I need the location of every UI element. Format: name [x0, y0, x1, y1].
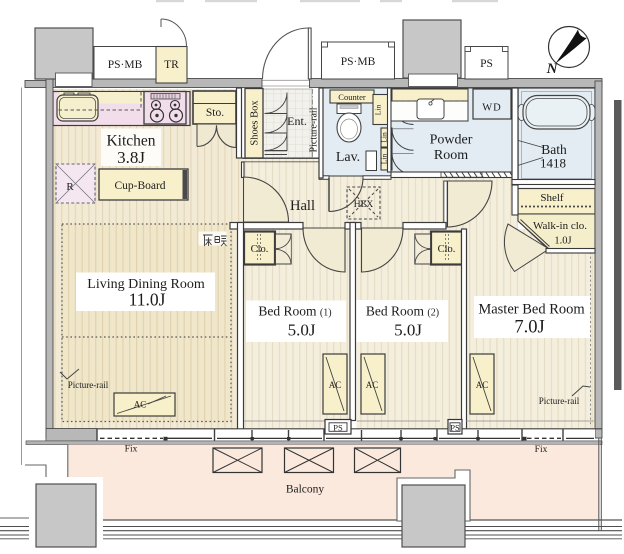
- svg-text:AC: AC: [476, 380, 489, 390]
- svg-text:Balcony: Balcony: [286, 484, 325, 496]
- svg-text:Fix: Fix: [125, 445, 138, 455]
- svg-text:PS: PS: [480, 58, 493, 70]
- svg-text:5.0J: 5.0J: [288, 321, 316, 340]
- svg-text:Master Bed Room: Master Bed Room: [478, 302, 585, 318]
- svg-text:1418: 1418: [540, 156, 566, 171]
- svg-text:Picture-rail: Picture-rail: [68, 380, 109, 390]
- svg-text:Lin: Lin: [374, 105, 383, 116]
- svg-text:N: N: [546, 61, 559, 77]
- svg-text:Powder: Powder: [430, 133, 473, 148]
- svg-text:Sto.: Sto.: [206, 107, 224, 119]
- svg-text:Hall: Hall: [290, 198, 315, 214]
- svg-text:1.0J: 1.0J: [554, 236, 571, 247]
- svg-text:Clo.: Clo.: [438, 244, 456, 255]
- svg-text:5.0J: 5.0J: [394, 321, 422, 340]
- svg-text:3.8J: 3.8J: [117, 148, 145, 167]
- svg-text:Walk-in clo.: Walk-in clo.: [533, 220, 587, 232]
- svg-text:Lav.: Lav.: [336, 150, 360, 165]
- svg-text:AC: AC: [134, 400, 147, 410]
- svg-text:Kitchen: Kitchen: [106, 133, 155, 150]
- svg-text:HEX: HEX: [354, 200, 374, 210]
- svg-text:11.0J: 11.0J: [129, 290, 166, 310]
- svg-text:Picture-rail: Picture-rail: [309, 107, 320, 152]
- svg-text:TR: TR: [164, 59, 179, 71]
- svg-text:Fix: Fix: [535, 445, 548, 455]
- svg-text:Clo.: Clo.: [251, 244, 269, 255]
- svg-text:R: R: [66, 181, 74, 193]
- svg-text:PS: PS: [333, 423, 343, 433]
- svg-text:Counter: Counter: [338, 92, 366, 102]
- svg-text:PS·MB: PS·MB: [341, 56, 376, 68]
- svg-text:Lin: Lin: [380, 154, 389, 165]
- svg-text:Ent.: Ent.: [287, 114, 307, 128]
- svg-text:Cup-Board: Cup-Board: [114, 180, 165, 192]
- svg-text:PS·MB: PS·MB: [108, 59, 143, 71]
- svg-text:WD: WD: [482, 103, 502, 114]
- svg-text:Lin: Lin: [380, 132, 389, 143]
- svg-text:Picture-rail: Picture-rail: [539, 396, 580, 406]
- svg-text:Shoes Box: Shoes Box: [250, 100, 261, 146]
- svg-text:Room: Room: [434, 148, 468, 163]
- svg-text:AC: AC: [366, 380, 379, 390]
- svg-text:7.0J: 7.0J: [514, 318, 544, 338]
- svg-text:PS: PS: [450, 423, 460, 433]
- svg-text:AC: AC: [329, 380, 342, 390]
- svg-text:Shelf: Shelf: [540, 192, 564, 204]
